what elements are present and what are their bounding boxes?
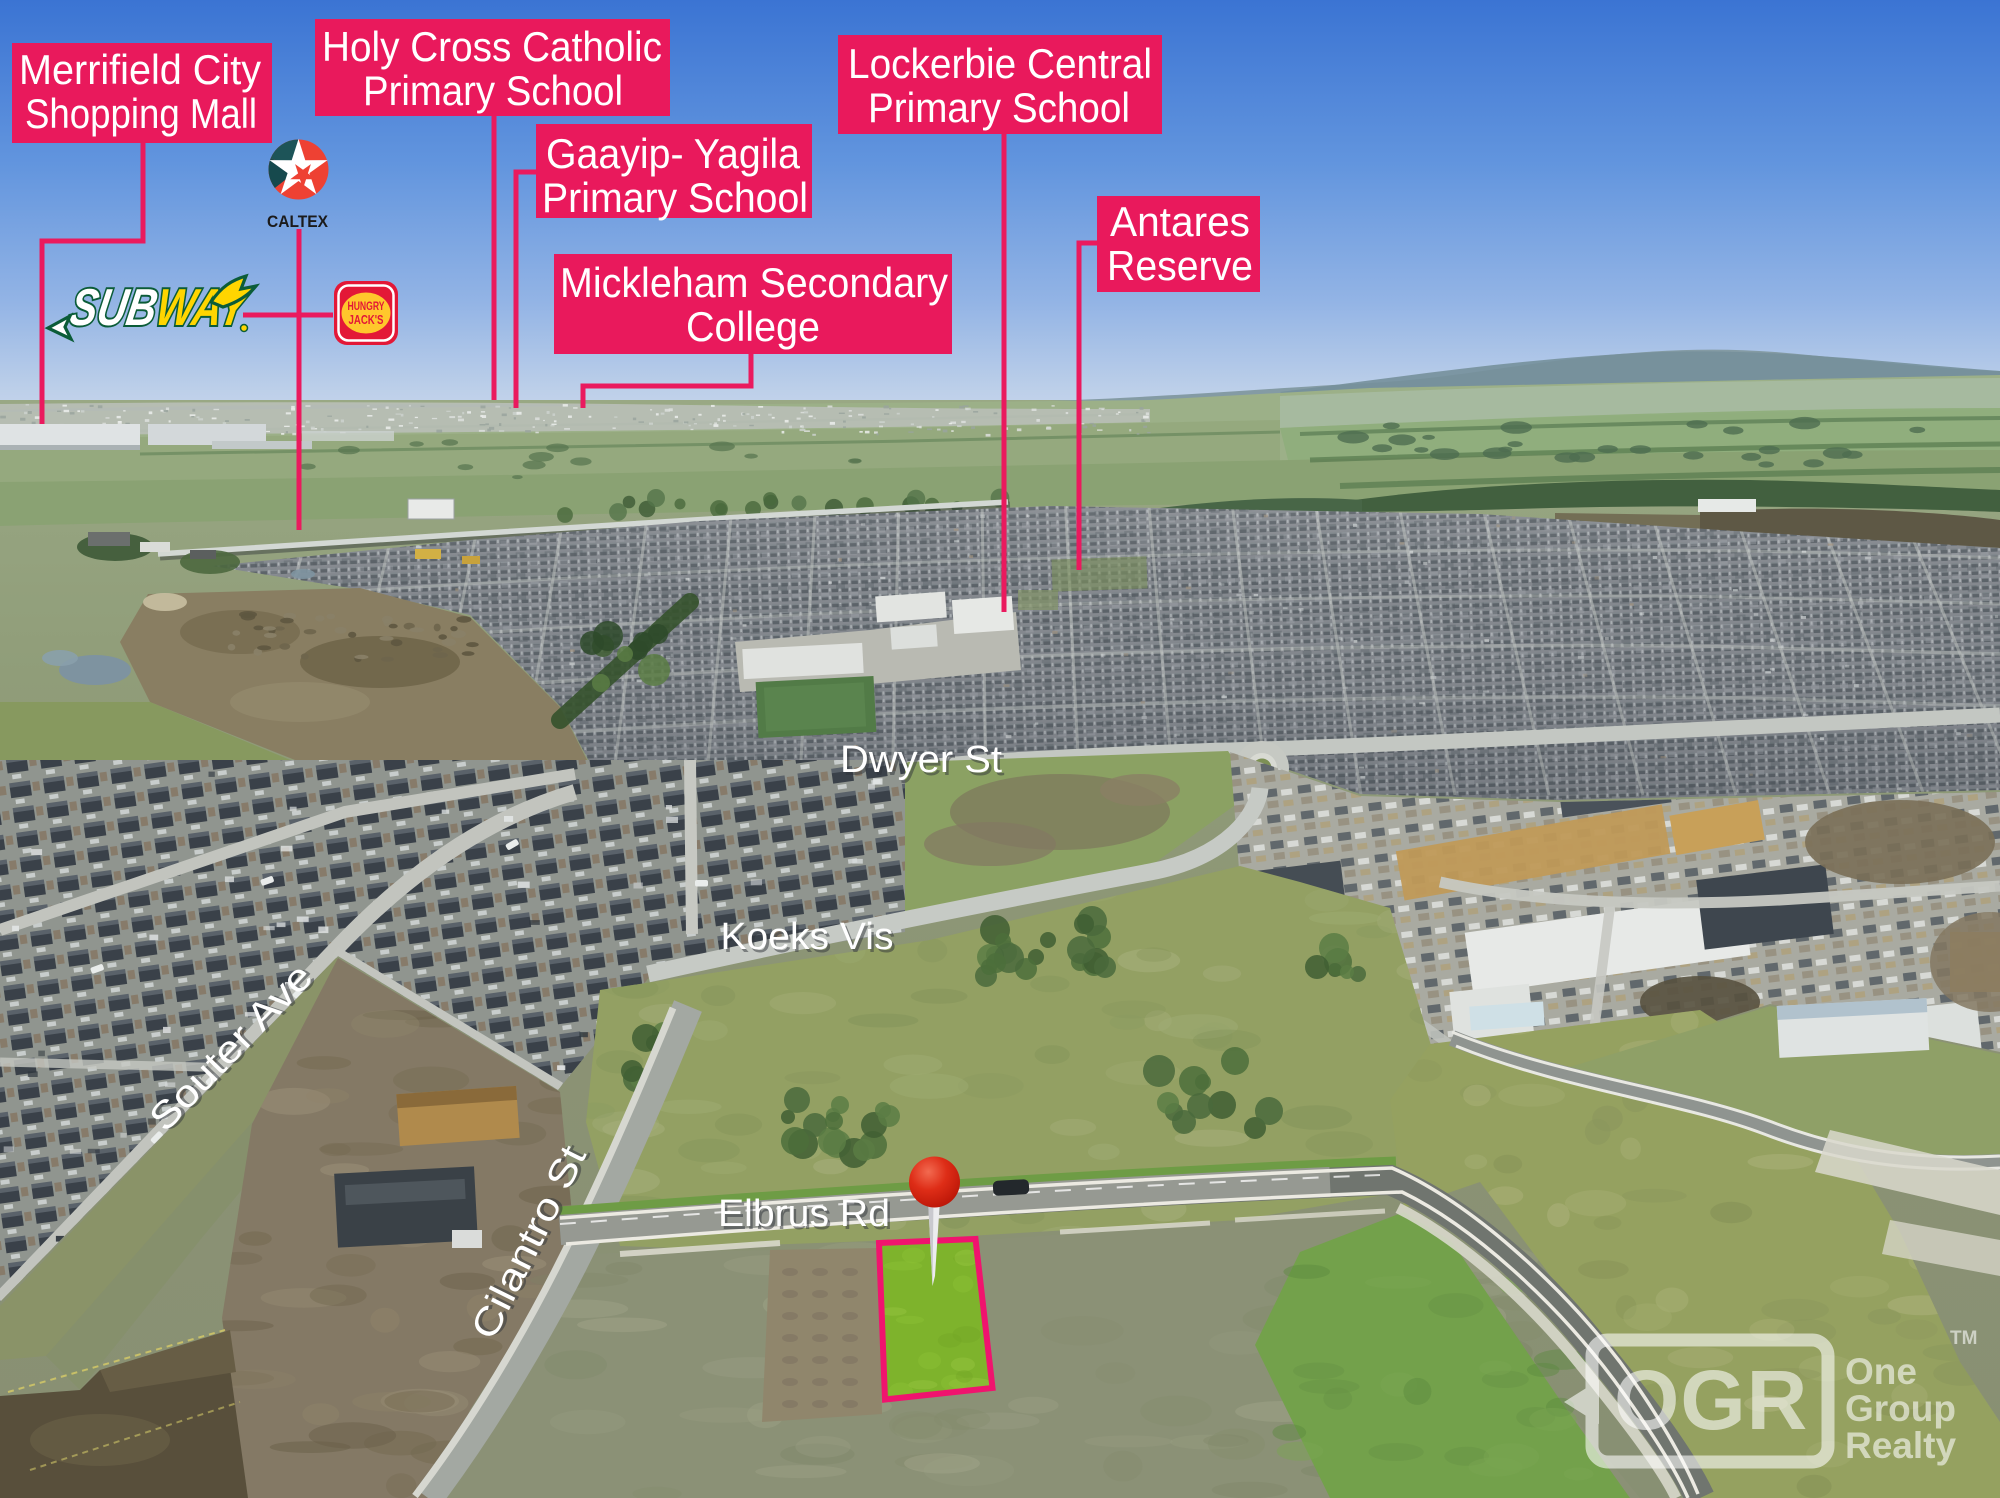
svg-text:Elbrus Rd: Elbrus Rd [718, 1193, 890, 1235]
svg-text:Primary School: Primary School [542, 174, 808, 221]
svg-text:Gaayip- Yagila: Gaayip- Yagila [546, 130, 801, 177]
svg-text:Lockerbie Central: Lockerbie Central [848, 40, 1152, 87]
svg-text:CALTEX: CALTEX [267, 213, 328, 231]
svg-text:Group: Group [1845, 1388, 1956, 1429]
svg-text:Mickleham Secondary: Mickleham Secondary [560, 259, 948, 306]
svg-text:Reserve: Reserve [1107, 242, 1253, 289]
svg-text:College: College [686, 303, 820, 350]
svg-text:Merrifield City: Merrifield City [19, 46, 261, 93]
svg-text:Koeks Vis: Koeks Vis [721, 916, 894, 958]
svg-text:Realty: Realty [1845, 1425, 1956, 1466]
svg-text:Holy Cross Catholic: Holy Cross Catholic [322, 23, 662, 70]
svg-text:OGR: OGR [1614, 1353, 1808, 1447]
svg-text:Dwyer St: Dwyer St [840, 739, 1002, 781]
svg-text:Antares: Antares [1110, 198, 1250, 245]
svg-text:Primary School: Primary School [363, 67, 623, 114]
svg-text:One: One [1845, 1351, 1917, 1392]
svg-text:TM: TM [1950, 1328, 1977, 1349]
svg-text:Shopping Mall: Shopping Mall [25, 90, 257, 137]
svg-text:JACK'S: JACK'S [349, 312, 384, 327]
svg-text:Primary School: Primary School [868, 84, 1130, 131]
